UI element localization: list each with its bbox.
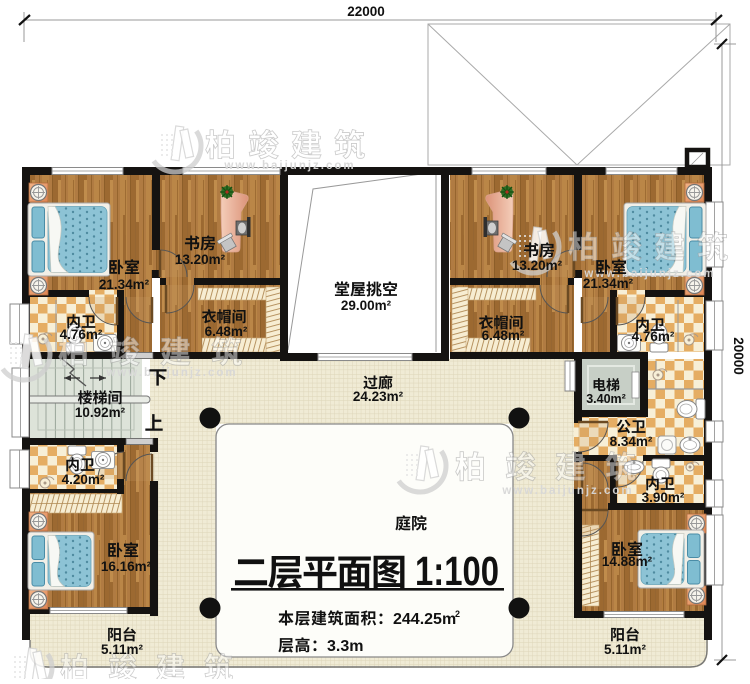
svg-text:20000: 20000 bbox=[731, 337, 746, 375]
svg-text:16.16m²: 16.16m² bbox=[101, 559, 152, 574]
svg-text:5.11m²: 5.11m² bbox=[604, 642, 647, 657]
svg-text:14.88m²: 14.88m² bbox=[602, 554, 653, 569]
svg-text:8.34m²: 8.34m² bbox=[610, 434, 653, 449]
svg-text:www.baijunjz.com: www.baijunjz.com bbox=[501, 485, 633, 497]
svg-text:29.00m²: 29.00m² bbox=[341, 298, 392, 313]
svg-text:www.baijunjz.com: www.baijunjz.com bbox=[223, 160, 355, 172]
svg-text:13.20m²: 13.20m² bbox=[512, 258, 563, 273]
svg-text:244.25m: 244.25m bbox=[393, 611, 456, 628]
svg-text:4.20m²: 4.20m² bbox=[62, 472, 105, 487]
svg-text:21.34m²: 21.34m² bbox=[583, 276, 634, 291]
svg-text:13.20m²: 13.20m² bbox=[175, 252, 226, 267]
svg-text:2: 2 bbox=[455, 609, 460, 619]
svg-text:4.76m²: 4.76m² bbox=[632, 329, 675, 344]
svg-text:24.23m²: 24.23m² bbox=[353, 389, 404, 404]
svg-text:www.baijunjz.com: www.baijunjz.com bbox=[105, 367, 237, 379]
svg-text:3.3m: 3.3m bbox=[327, 638, 363, 655]
svg-text:4.76m²: 4.76m² bbox=[60, 327, 103, 342]
svg-text:22000: 22000 bbox=[347, 4, 385, 19]
svg-text:1:100: 1:100 bbox=[415, 548, 499, 594]
svg-text:3.40m²: 3.40m² bbox=[586, 392, 626, 406]
svg-text:6.48m²: 6.48m² bbox=[482, 328, 525, 343]
svg-text:6.48m²: 6.48m² bbox=[205, 324, 248, 339]
svg-text:5.11m²: 5.11m² bbox=[101, 642, 144, 657]
svg-text:3.90m²: 3.90m² bbox=[642, 490, 685, 505]
svg-text:10.92m²: 10.92m² bbox=[75, 405, 126, 420]
svg-text:21.34m²: 21.34m² bbox=[99, 277, 150, 292]
